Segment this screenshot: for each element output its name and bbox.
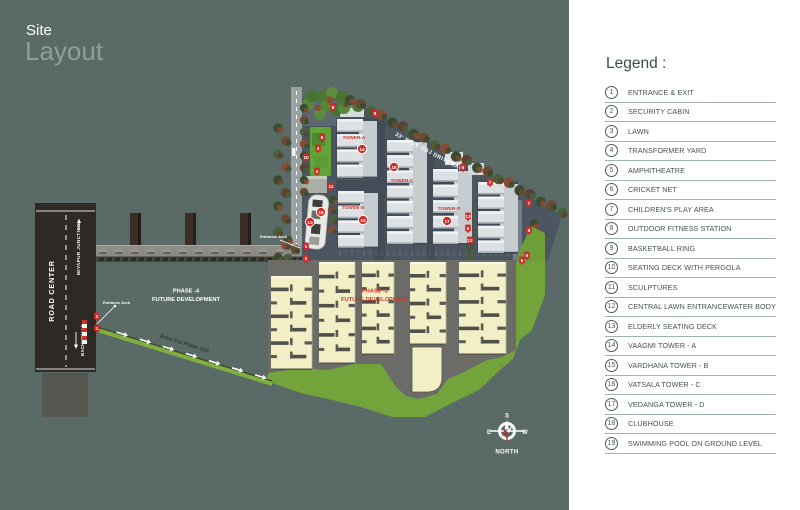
svg-text:NORTH: NORTH (495, 450, 518, 456)
svg-text:TOWER-D: TOWER-D (438, 206, 461, 212)
svg-text:7: 7 (489, 180, 492, 186)
svg-text:TOWER-A: TOWER-A (343, 135, 366, 141)
svg-text:Entrance Arch: Entrance Arch (103, 300, 131, 305)
svg-text:9: 9 (526, 253, 529, 259)
svg-text:TOWER-C: TOWER-C (391, 178, 414, 184)
svg-text:TOWER-B: TOWER-B (342, 205, 365, 211)
svg-text:11: 11 (328, 184, 333, 190)
svg-text:1: 1 (305, 244, 308, 250)
svg-text:9: 9 (321, 135, 324, 141)
svg-text:MIYAPUR JUNCTION: MIYAPUR JUNCTION (76, 223, 81, 275)
svg-text:14: 14 (359, 147, 365, 153)
svg-text:1: 1 (96, 326, 99, 332)
svg-text:PHASE -4: PHASE -4 (173, 289, 200, 295)
svg-text:2: 2 (96, 314, 99, 320)
svg-text:16: 16 (391, 165, 397, 171)
svg-text:W: W (522, 430, 528, 436)
svg-text:6: 6 (462, 165, 465, 171)
svg-text:10: 10 (303, 155, 309, 161)
svg-text:3: 3 (317, 146, 320, 152)
svg-text:S: S (505, 414, 509, 420)
svg-text:PHASE -2: PHASE -2 (362, 289, 388, 295)
svg-text:7: 7 (528, 201, 531, 207)
svg-text:8: 8 (332, 105, 335, 111)
svg-text:6: 6 (521, 258, 524, 264)
svg-text:FUTURE DEVELOPMENT: FUTURE DEVELOPMENT (341, 297, 409, 303)
svg-text:13: 13 (307, 220, 313, 226)
svg-text:17: 17 (444, 219, 450, 225)
svg-text:15: 15 (360, 218, 366, 224)
svg-text:8: 8 (528, 228, 531, 234)
svg-text:5: 5 (467, 226, 470, 232)
svg-text:E: E (487, 430, 491, 436)
svg-text:2: 2 (305, 256, 308, 262)
svg-text:ROAD CENTER: ROAD CENTER (47, 260, 56, 322)
svg-text:Entrance Arch: Entrance Arch (260, 234, 288, 239)
svg-text:12: 12 (467, 238, 473, 244)
svg-text:5: 5 (374, 111, 377, 117)
svg-text:18: 18 (318, 210, 324, 216)
svg-text:4: 4 (316, 169, 319, 175)
svg-text:13: 13 (465, 214, 471, 220)
svg-text:FUTURE DEVELOPMENT: FUTURE DEVELOPMENT (152, 297, 220, 303)
